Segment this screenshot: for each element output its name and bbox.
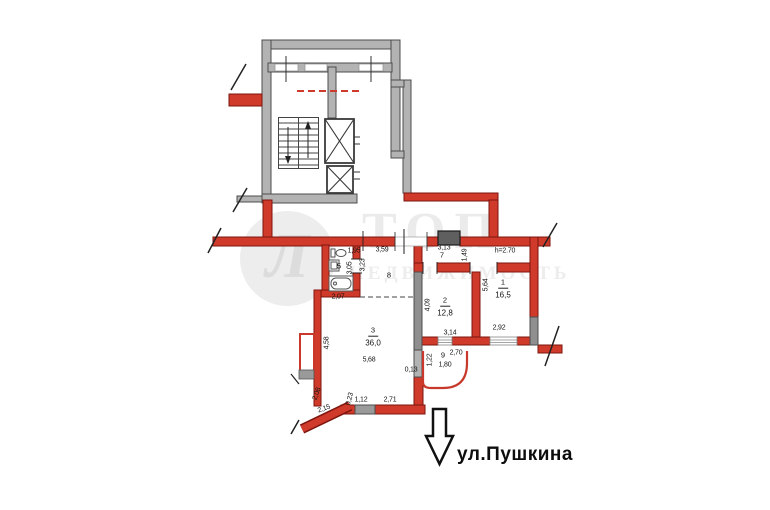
- stairwell-core: [231, 40, 411, 212]
- balcony-left: [291, 334, 314, 384]
- floor-plan: Л ТОП НЕДВИЖИМОСТЬ: [0, 0, 770, 510]
- elevator-shaft: [325, 119, 354, 163]
- floor-plan-drawing: [0, 0, 770, 510]
- balcony-right: [423, 351, 467, 388]
- diagonal-wall: [291, 406, 350, 434]
- sink: [329, 260, 339, 271]
- street-arrow: [426, 409, 453, 464]
- window-balcony: [438, 337, 452, 345]
- window-room1: [490, 337, 517, 345]
- entrance-door: [438, 231, 460, 245]
- break-ticks: [231, 64, 247, 212]
- bathroom-fixtures: [329, 249, 353, 291]
- toilet: [331, 249, 346, 257]
- stairs: [279, 118, 319, 169]
- bathtub: [329, 276, 353, 291]
